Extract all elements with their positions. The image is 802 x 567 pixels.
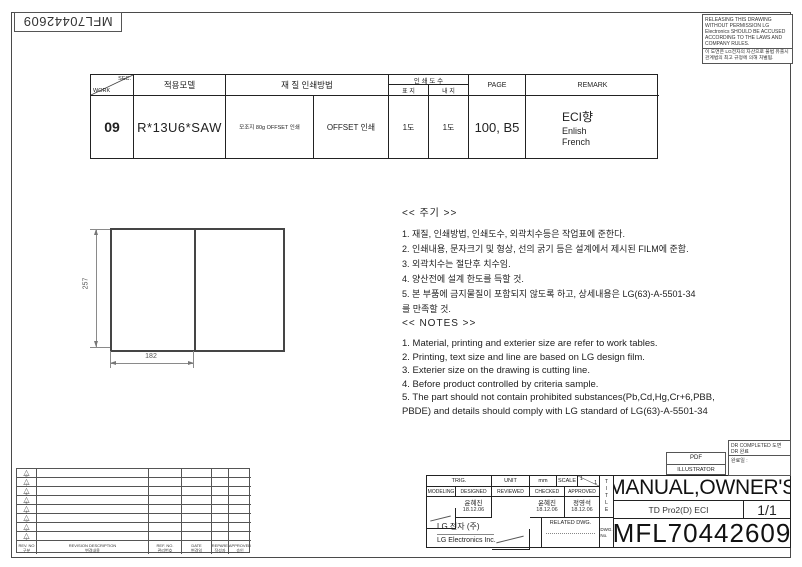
notes-en-item: 1. Material, printing and exterier size …: [402, 337, 762, 351]
notes-kr-item: 2. 인쇄내용, 문자크기 및 형상, 선의 굵기 등은 설계에서 제시된 FI…: [402, 242, 762, 257]
revision-triangle-icon: 7: [23, 478, 29, 486]
notes-kr-item: 3. 외곽치수는 절단후 치수임.: [402, 257, 762, 272]
notes-kr-item: 5. 본 부품에 금지물질이 포함되지 않도록 하고, 상세내용은 LG(63)…: [402, 287, 762, 317]
col-modeling: MODELING: [427, 487, 456, 497]
revision-row-marker: 8: [17, 469, 37, 478]
designed-signature: 윤혜진 18.12.06: [456, 497, 492, 518]
notes-en-item: 2. Printing, text size and line are base…: [402, 351, 762, 365]
file-format-box: PDF ILLUSTRATOR: [666, 452, 726, 475]
notes-en-title: << NOTES >>: [402, 318, 762, 329]
revision-row-marker: 3: [17, 514, 37, 523]
revision-triangle-icon: 4: [23, 505, 29, 513]
revision-header-ref-no: REF. NO.관리번호: [149, 541, 182, 554]
checked-signature: 윤혜진 18.12.06: [530, 497, 565, 518]
unit-label: UNIT: [492, 476, 530, 487]
header-model: 적용모델: [134, 75, 226, 96]
document-title: MANUAL,OWNER'S: [614, 476, 790, 501]
dr-completed-label: DR COMPLETED 도면 DR 완료: [729, 441, 790, 456]
header-page: PAGE: [469, 75, 526, 96]
width-dimension-label: 182: [136, 353, 166, 360]
revision-row-marker: 5: [17, 496, 37, 505]
sheet-number: 1/1: [744, 501, 790, 519]
revision-cell: [37, 469, 149, 478]
dr-completed-box: DR COMPLETED 도면 DR 완료 완료일 :: [728, 440, 791, 476]
remark-line-2: Enlish: [562, 126, 587, 136]
extension-line-mid: [193, 351, 194, 368]
company-name-english: LG Electronics Inc.: [437, 537, 496, 544]
notes-en-item: 3. Exterier size on the drawing is cutti…: [402, 364, 762, 378]
notes-en-item: 5. The part should not contain prohibite…: [402, 391, 762, 418]
scale-value: 1 1: [578, 476, 600, 487]
document-subtitle: TD Pro2(D) ECI: [614, 501, 744, 519]
company-cell: LG 전자 (주) LG Electronics Inc.: [427, 518, 542, 547]
approved-signature: 정영석 18.12.06: [565, 497, 600, 518]
revision-row-marker: 2: [17, 523, 37, 532]
notes-kr-item: 4. 양산전에 설계 한도를 득할 것.: [402, 272, 762, 287]
extension-line-bottom: [90, 347, 110, 348]
revision-header-approved: APPROVED승인: [229, 541, 251, 554]
work-spec-table: SEC. WORK 적용모델 재 질 인쇄방법 인 쇄 도 수 표 지 내 지 …: [90, 74, 658, 159]
header-print-count: 인 쇄 도 수: [389, 75, 469, 85]
related-dwg-cell: RELATED DWG.: [542, 518, 600, 547]
header-inner: 내 지: [429, 85, 469, 96]
warning-text-english: RELEASING THIS DRAWING WITHOUT PERMISSIO…: [703, 15, 792, 48]
notes-section-english: << NOTES >> 1. Material, printing and ex…: [402, 318, 762, 418]
revision-triangle-icon: 5: [23, 496, 29, 504]
revision-row-marker: 4: [17, 505, 37, 514]
corner-header-cell: SEC. WORK: [91, 75, 134, 96]
revision-triangle-icon: 8: [23, 469, 29, 477]
dr-completed-date-label: 완료일 :: [729, 456, 790, 466]
col-checked: CHECKED: [530, 487, 565, 497]
revision-row-marker: 6: [17, 487, 37, 496]
related-dwg-dotted-line: [546, 533, 595, 534]
cell-model: R*13U6*SAW: [134, 96, 226, 158]
drawing-number: MFL70442609: [614, 519, 790, 547]
col-reviewed: REVIEWED: [492, 487, 530, 497]
revision-triangle-icon: 2: [23, 523, 29, 531]
revision-row-marker: 1: [17, 532, 37, 541]
title-block: TRIG. UNIT mm SCALE 1 1 MODELING DESIGNE…: [426, 475, 791, 548]
revision-header-description: REVISION DESCRIPTION변경내용: [37, 541, 149, 554]
cell-material: 모조지 80g OFFSET 인쇄: [226, 96, 314, 158]
cell-remark: ECI향 Enlish French: [526, 96, 659, 158]
revision-triangle-icon: 1: [23, 532, 29, 540]
horizontal-dimension-line: [111, 363, 193, 364]
cell-method: OFFSET 인쇄: [314, 96, 389, 158]
extension-line-top: [90, 229, 110, 230]
trig-label: TRIG.: [427, 476, 492, 487]
remark-line-3: French: [562, 137, 590, 147]
stamp-number: MFL70442609: [23, 15, 112, 30]
revision-header-rev-no: REV. NO구분: [17, 541, 37, 554]
revision-table: 8 7 6 5 4 3 2 1 REV. NO구분 REVISION DESCR…: [16, 468, 250, 553]
revision-header-date: DATE변경일: [182, 541, 212, 554]
remark-line-1: ECI향: [562, 108, 593, 125]
header-remark: REMARK: [526, 75, 659, 96]
copyright-warning-box: RELEASING THIS DRAWING WITHOUT PERMISSIO…: [702, 14, 793, 64]
revision-row-marker: 7: [17, 478, 37, 487]
rotated-part-number-stamp: MFL70442609: [14, 12, 122, 32]
notes-en-item: 4. Before product controlled by criteria…: [402, 378, 762, 392]
company-name-korean: LG 전자 (주): [437, 521, 494, 535]
dwg-no-label: DWG. No.: [600, 518, 614, 547]
cell-inner-count: 1도: [429, 96, 469, 158]
notes-kr-item: 1. 재질, 인쇄방법, 인쇄도수, 외곽치수등은 작업표에 준한다.: [402, 227, 762, 242]
cell-page: 100, B5: [469, 96, 526, 158]
title-vertical-label: T I T L E: [600, 476, 614, 518]
scale-label: SCALE: [557, 476, 578, 487]
cell-work-section: 09: [91, 96, 134, 158]
page-outline-drawing: [110, 228, 285, 352]
corner-work-label: WORK: [93, 88, 110, 94]
notes-section-korean: << 주기 >> 1. 재질, 인쇄방법, 인쇄도수, 외곽치수등은 작업표에 …: [402, 204, 762, 317]
revision-triangle-icon: 6: [23, 487, 29, 495]
unit-value: mm: [530, 476, 557, 487]
col-designed: DESIGNED: [456, 487, 492, 497]
notes-kr-title: << 주기 >>: [402, 204, 762, 219]
vertical-dimension-line: [96, 230, 97, 347]
col-approved: APPROVED: [565, 487, 600, 497]
header-material-method: 재 질 인쇄방법: [226, 75, 389, 96]
cell-cover-count: 1도: [389, 96, 429, 158]
format-pdf-label: PDF: [667, 453, 725, 465]
revision-header-prepared: PREPARED작성자: [212, 541, 229, 554]
warning-text-korean: 이 도면은 LG전자의 자산으로 불법 유출시 관계법의 최고 규정에 의해 처…: [703, 48, 792, 63]
format-illustrator-label: ILLUSTRATOR: [667, 465, 725, 475]
corner-sec-label: SEC.: [118, 76, 131, 82]
revision-triangle-icon: 3: [23, 514, 29, 522]
header-cover: 표 지: [389, 85, 429, 96]
height-dimension-label: 257: [83, 274, 90, 294]
extension-line-left: [110, 351, 111, 368]
